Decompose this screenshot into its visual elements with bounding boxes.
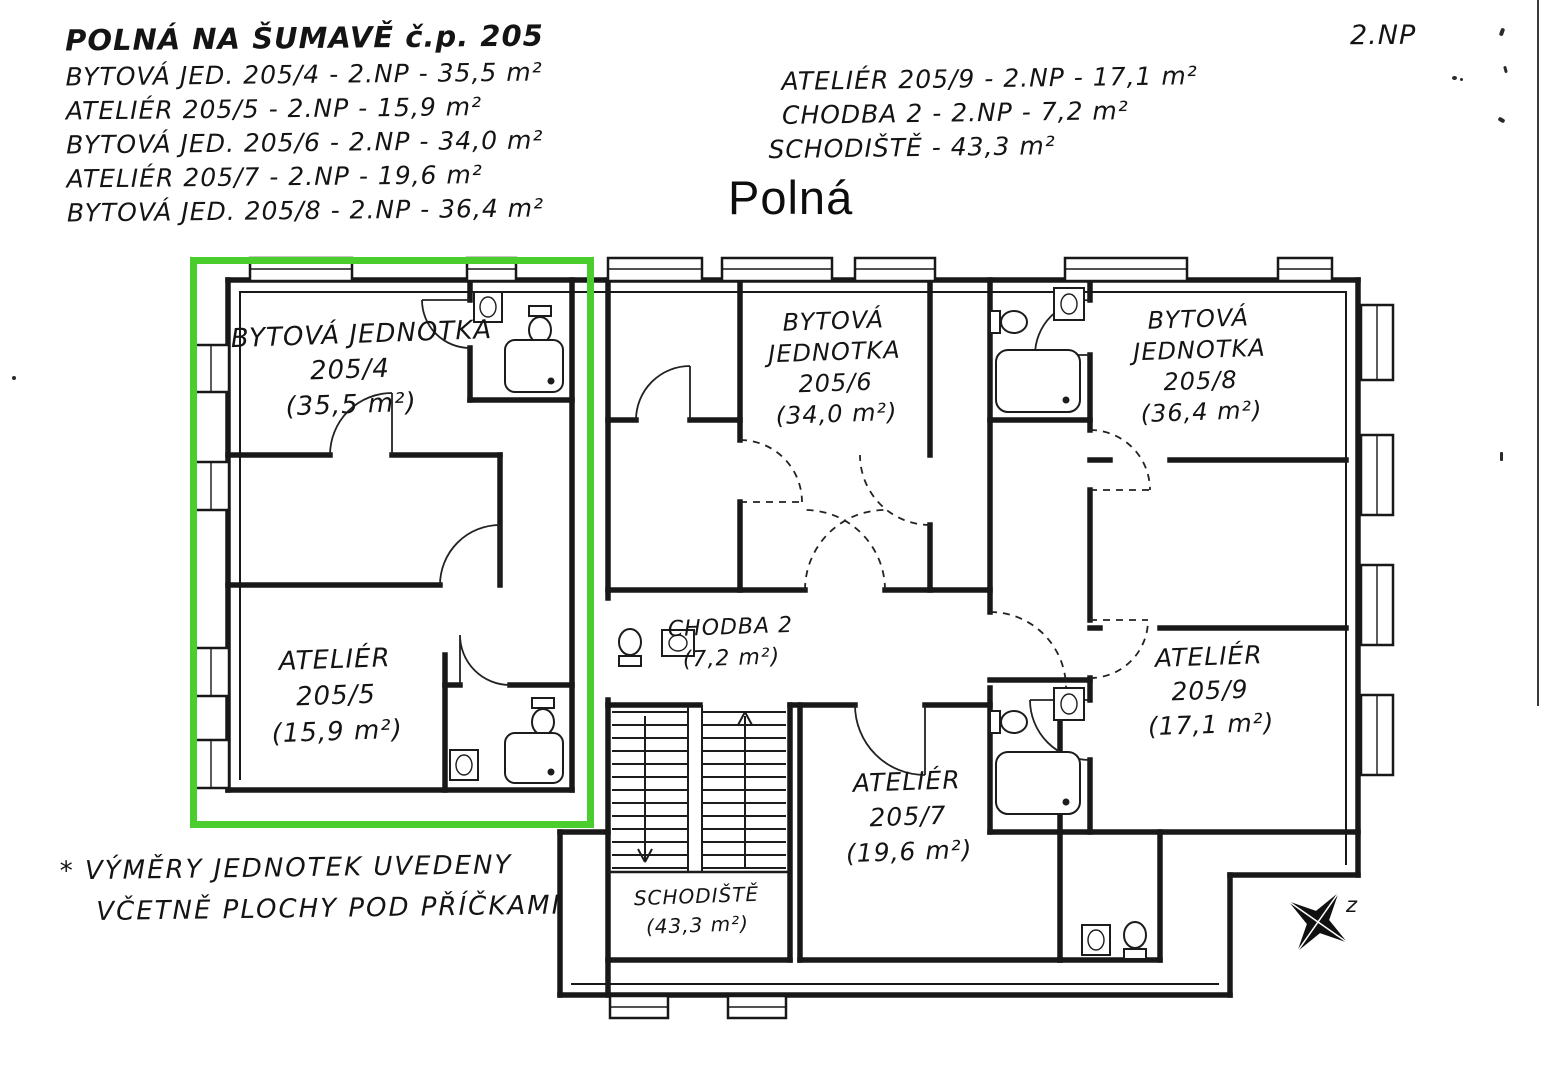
room-label-205-9: ATELIÉR 205/9 (17,1 m²) bbox=[1110, 637, 1309, 746]
legend-right-line: CHODBA 2 - 2.NP - 7,2 m² bbox=[782, 93, 1199, 133]
room-label-schodiste: SCHODIŠTĚ (43,3 m²) bbox=[603, 879, 791, 943]
compass-direction-label: z bbox=[1346, 893, 1358, 917]
room-label-205-4: BYTOVÁ JEDNOTKA 205/4 (35,5 m²) bbox=[230, 314, 470, 427]
stairs bbox=[608, 705, 790, 872]
floor-corner-label: 2.NP bbox=[1350, 20, 1416, 51]
room-label-205-8: BYTOVÁ JEDNOTKA 205/8 (36,4 m²) bbox=[1110, 301, 1290, 431]
scan-speck bbox=[1500, 452, 1503, 461]
legend-left-title: POLNÁ NA ŠUMAVĚ č.p. 205 bbox=[65, 15, 544, 60]
legend-right: ATELIÉR 205/9 - 2.NP - 17,1 m² CHODBA 2 … bbox=[781, 59, 1199, 167]
legend-right-line: ATELIÉR 205/9 - 2.NP - 17,1 m² bbox=[781, 59, 1198, 99]
room-label-205-5: ATELIÉR 205/5 (15,9 m²) bbox=[236, 639, 436, 754]
legend-left-line: BYTOVÁ JED. 205/6 - 2.NP - 34,0 m² bbox=[66, 123, 545, 162]
scan-speck bbox=[1460, 78, 1463, 81]
scan-speck bbox=[12, 376, 16, 380]
room-label-205-6: BYTOVÁ JEDNOTKA 205/6 (34,0 m²) bbox=[740, 303, 930, 433]
legend-left: POLNÁ NA ŠUMAVĚ č.p. 205 BYTOVÁ JED. 205… bbox=[65, 15, 546, 230]
legend-left-line: ATELIÉR 205/5 - 2.NP - 15,9 m² bbox=[66, 89, 545, 128]
footnote-line: * VÝMĚRY JEDNOTEK UVEDENY bbox=[59, 845, 561, 893]
legend-left-line: BYTOVÁ JED. 205/4 - 2.NP - 35,5 m² bbox=[65, 55, 544, 94]
footnote: * VÝMĚRY JEDNOTEK UVEDENY VČETNĚ PLOCHY … bbox=[59, 845, 561, 934]
legend-left-line: ATELIÉR 205/7 - 2.NP - 19,6 m² bbox=[66, 157, 545, 196]
scan-speck bbox=[1452, 76, 1457, 80]
footnote-line: VČETNĚ PLOCHY POD PŘÍČKAMI bbox=[60, 886, 562, 934]
room-label-205-7: ATELIÉR 205/7 (19,6 m²) bbox=[804, 760, 1012, 872]
scan-edge-line bbox=[1537, 0, 1539, 706]
compass-icon bbox=[1268, 872, 1368, 972]
street-title: Polná bbox=[728, 170, 853, 225]
legend-left-line: BYTOVÁ JED. 205/8 - 2.NP - 36,4 m² bbox=[67, 191, 546, 230]
room-label-chodba-2: CHODBA 2 (7,2 m²) bbox=[647, 609, 815, 677]
legend-right-line: SCHODIŠTĚ - 43,3 m² bbox=[768, 127, 1199, 167]
